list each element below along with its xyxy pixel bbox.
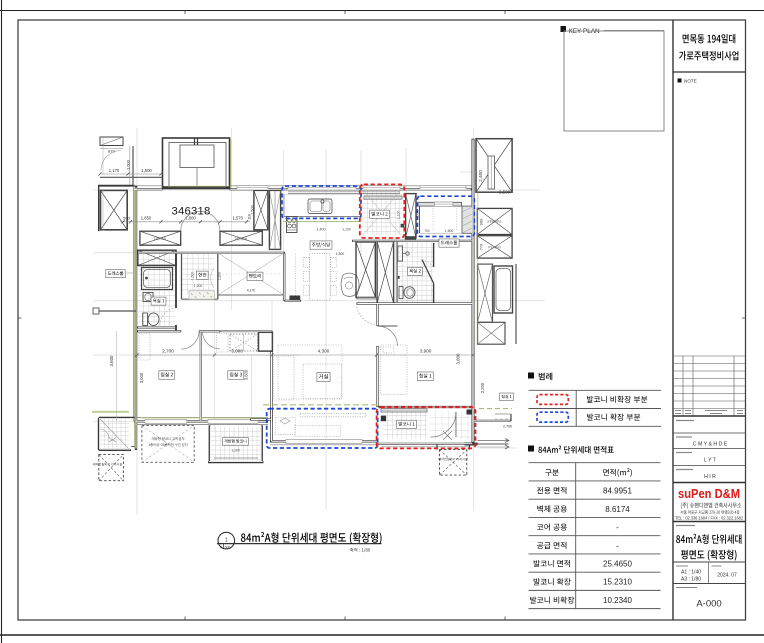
svg-text:L Y T: L Y T bbox=[704, 458, 717, 464]
svg-text:EPS/TPS: EPS/TPS bbox=[488, 220, 503, 224]
svg-text:500: 500 bbox=[123, 216, 130, 221]
svg-text:1,850: 1,850 bbox=[141, 216, 152, 221]
svg-text:25.4650: 25.4650 bbox=[603, 560, 632, 569]
svg-text:1,400: 1,400 bbox=[317, 228, 326, 232]
svg-text:1: 1 bbox=[225, 538, 228, 544]
svg-text:1,100: 1,100 bbox=[342, 228, 351, 232]
svg-text:2,200: 2,200 bbox=[480, 382, 485, 393]
svg-text:700: 700 bbox=[424, 229, 430, 233]
svg-text:15.2310: 15.2310 bbox=[603, 578, 632, 587]
svg-text:1,200: 1,200 bbox=[194, 284, 203, 288]
svg-text:4,300: 4,300 bbox=[318, 349, 330, 354]
svg-text:suPen D&M: suPen D&M bbox=[678, 486, 740, 501]
svg-text:A3 : 1/80: A3 : 1/80 bbox=[681, 577, 701, 583]
svg-text:H I R: H I R bbox=[704, 474, 716, 480]
svg-text:1,800: 1,800 bbox=[336, 252, 345, 256]
svg-text:1,100: 1,100 bbox=[218, 272, 222, 280]
svg-text:900: 900 bbox=[478, 218, 483, 225]
svg-text:1,170: 1,170 bbox=[109, 168, 120, 173]
svg-text:3,600: 3,600 bbox=[244, 369, 249, 380]
svg-text:1,500: 1,500 bbox=[251, 205, 255, 215]
svg-text:1,500: 1,500 bbox=[141, 168, 152, 173]
svg-text:3,000: 3,000 bbox=[231, 349, 243, 354]
svg-text:C M Y & H D E: C M Y & H D E bbox=[693, 442, 728, 448]
svg-text:1,600: 1,600 bbox=[126, 159, 131, 170]
svg-text:84.9951: 84.9951 bbox=[603, 487, 632, 496]
svg-text:870: 870 bbox=[108, 148, 115, 153]
svg-text:346318: 346318 bbox=[172, 206, 211, 218]
svg-text:770: 770 bbox=[479, 244, 483, 250]
svg-text:8.6174: 8.6174 bbox=[605, 505, 630, 514]
svg-text:-: - bbox=[616, 541, 619, 550]
svg-text:1,500: 1,500 bbox=[191, 272, 195, 281]
svg-text:10.2340: 10.2340 bbox=[603, 596, 632, 605]
svg-text:A-000: A-000 bbox=[696, 599, 721, 610]
svg-text:3,000: 3,000 bbox=[139, 372, 144, 383]
svg-text:3,600: 3,600 bbox=[456, 353, 461, 365]
svg-text:TEL : 02.336.1684 / FAX : 02.3: TEL : 02.336.1684 / FAX : 02.322.1682 bbox=[675, 515, 744, 520]
svg-text:A1 : 1/40: A1 : 1/40 bbox=[681, 570, 701, 576]
svg-text:1,100: 1,100 bbox=[397, 211, 401, 220]
svg-text:DS / AD: DS / AD bbox=[154, 237, 167, 241]
svg-text:3,600: 3,600 bbox=[109, 355, 114, 367]
svg-text:2,700: 2,700 bbox=[162, 349, 174, 354]
svg-text:3,900: 3,900 bbox=[420, 349, 432, 354]
svg-text:2,500: 2,500 bbox=[499, 190, 511, 195]
svg-text:NOTE: NOTE bbox=[684, 79, 697, 84]
svg-text:2024. 07: 2024. 07 bbox=[717, 573, 737, 579]
svg-text:000: 000 bbox=[225, 546, 231, 550]
svg-text:1,500: 1,500 bbox=[416, 211, 420, 220]
svg-text:2,400: 2,400 bbox=[478, 170, 483, 182]
svg-text:2,700: 2,700 bbox=[503, 424, 512, 428]
svg-text:1,500: 1,500 bbox=[445, 229, 454, 233]
svg-text:1,570: 1,570 bbox=[232, 216, 243, 221]
svg-text:4,170: 4,170 bbox=[247, 289, 256, 293]
svg-text:-: - bbox=[616, 523, 619, 532]
